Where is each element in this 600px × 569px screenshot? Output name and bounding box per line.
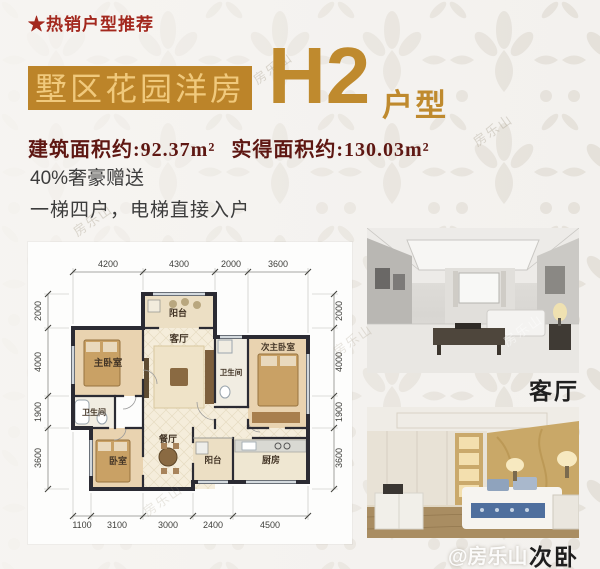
floorplan-drawing: 阳台 主卧室 客厅 卫生间 次主卧室 卫生间 卧室 餐厅 阳台 厨房	[28, 242, 352, 544]
dim-left-0: 2000	[33, 301, 43, 321]
feature-gift: 40%奢豪赠送	[30, 163, 144, 190]
room-label-balcony-bottom: 阳台	[204, 455, 222, 465]
dim-bottom-3: 2400	[203, 520, 223, 530]
dim-bottom-0: 1100	[72, 520, 91, 530]
dim-top-2: 2000	[221, 259, 241, 269]
watermark-badge: @房乐山	[448, 540, 528, 569]
dim-top-1: 4300	[169, 259, 189, 269]
feature-elevator: 一梯四户，电梯直接入户	[30, 195, 250, 222]
room-label-second-master-bedroom: 次主卧室	[261, 342, 296, 352]
area-built: 建筑面积约:92.37m²	[28, 139, 215, 161]
dim-top-3: 3600	[268, 259, 288, 269]
dim-right-3: 3600	[334, 448, 344, 468]
page-title: 墅区花园洋房	[28, 66, 252, 110]
dim-bottom-2: 3000	[158, 520, 178, 530]
area-line: 建筑面积约:92.37m²实得面积约:130.03m²	[28, 133, 430, 162]
floorplan: 阳台 主卧室 客厅 卫生间 次主卧室 卫生间 卧室 餐厅 阳台 厨房	[28, 242, 352, 544]
living-room-photo	[367, 228, 579, 373]
unit-code-suffix: 户型	[382, 80, 448, 125]
room-label-master-bedroom: 主卧室	[94, 357, 123, 369]
dim-left-3: 3600	[33, 448, 43, 468]
dim-right-0: 2000	[334, 301, 344, 321]
room-label-living-room: 客厅	[168, 333, 189, 345]
room-label-kitchen: 厨房	[262, 454, 280, 465]
living-room-label: 客厅	[479, 372, 579, 406]
dim-bottom-4: 4500	[260, 520, 280, 530]
area-actual: 实得面积约:130.03m²	[231, 139, 429, 161]
room-label-bedroom: 卧室	[109, 455, 127, 466]
hot-sale-tag: ★热销户型推荐	[28, 10, 154, 35]
room-label-bathroom-mid: 卫生间	[220, 367, 243, 377]
unit-code: H2	[268, 36, 370, 116]
bedroom-photo	[367, 407, 579, 538]
dim-left-2: 1900	[33, 402, 43, 422]
dim-top-0: 4200	[98, 259, 118, 269]
flyer-page: 房乐山 房乐山 房乐山 房乐山 房乐山 房乐山 ★热销户型推荐 墅区花园洋房 H…	[0, 0, 600, 569]
room-label-dining-room: 餐厅	[158, 433, 177, 444]
room-label-balcony-top: 阳台	[169, 307, 187, 318]
room-label-bathroom-left: 卫生间	[82, 407, 106, 417]
dim-right-2: 1900	[334, 402, 344, 422]
dim-left-1: 4000	[33, 352, 43, 372]
dim-bottom-1: 3100	[107, 520, 127, 530]
